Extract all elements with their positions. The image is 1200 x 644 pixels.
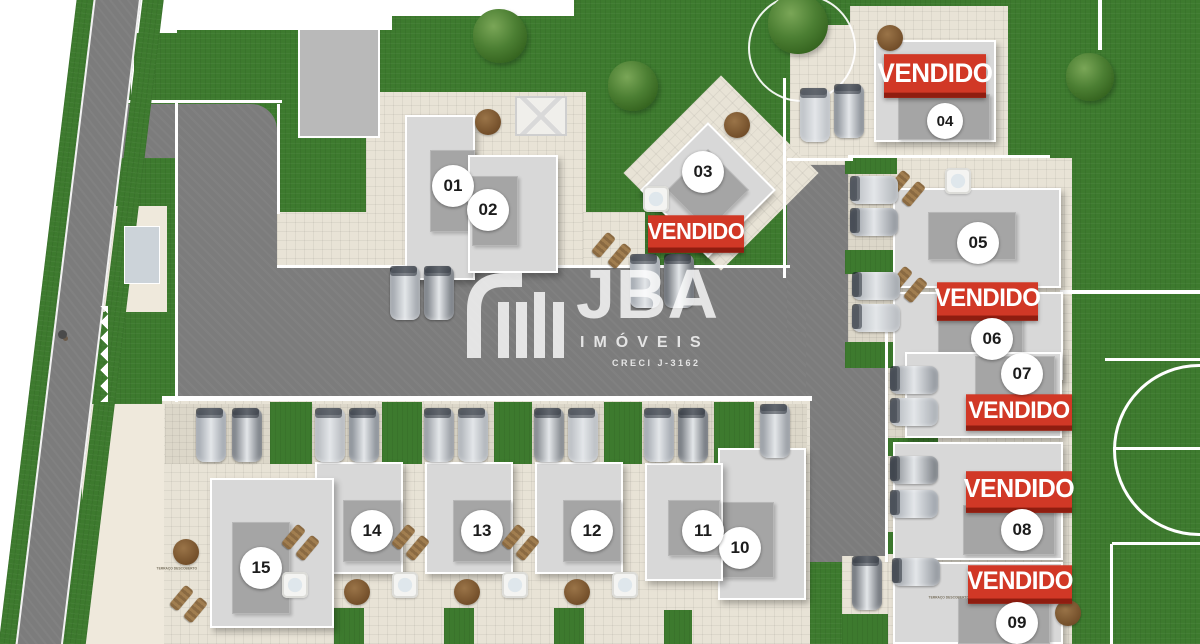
lawn-patch	[845, 250, 897, 274]
spa	[945, 168, 971, 194]
patio-table	[454, 579, 480, 605]
car-rear-window	[850, 176, 857, 201]
unit-badge-12: 12	[571, 510, 613, 552]
patio-table	[877, 25, 903, 51]
lawn-patch	[842, 614, 888, 644]
car-rear-window	[852, 272, 859, 297]
sold-banner-07: VENDIDO	[966, 394, 1072, 430]
car-rear-window	[760, 404, 787, 411]
patio-table	[475, 109, 501, 135]
car-rear-window	[232, 408, 259, 415]
person-icon	[58, 330, 67, 339]
unit-badge-05: 05	[957, 222, 999, 264]
car-rear-window	[834, 84, 861, 91]
sold-banner-09: VENDIDO	[968, 565, 1072, 603]
car-rear-window	[424, 408, 451, 415]
neighbor-building	[298, 14, 380, 138]
tree	[473, 9, 527, 63]
unit-badge-06: 06	[971, 318, 1013, 360]
car	[852, 556, 882, 610]
car-rear-window	[890, 490, 897, 515]
car-rear-window	[390, 266, 417, 273]
unit-badge-08: 08	[1001, 509, 1043, 551]
unit-badge-14: 14	[351, 510, 393, 552]
lawn-patch	[604, 402, 642, 464]
patio-table	[344, 579, 370, 605]
car-rear-window	[678, 408, 705, 415]
car-rear-window	[890, 398, 897, 423]
boundary-line	[175, 102, 178, 402]
car	[800, 88, 830, 142]
terrace-label: TERRAÇO DESCOBERTO	[929, 596, 969, 599]
car-rear-window	[315, 408, 342, 415]
car	[852, 272, 900, 300]
car	[890, 398, 938, 426]
car	[834, 84, 864, 138]
lawn-patch	[554, 608, 584, 644]
watermark: JBA IMÓVEIS CRECI J-3162	[466, 256, 746, 388]
car	[232, 408, 262, 462]
car	[892, 558, 940, 586]
car	[349, 408, 379, 462]
car-rear-window	[800, 88, 827, 95]
lawn-patch	[494, 402, 532, 464]
lawn-patch	[382, 402, 422, 464]
lawn-patch	[664, 610, 692, 644]
unit-badge-02: 02	[467, 189, 509, 231]
boundary-steps	[92, 306, 108, 402]
car	[890, 490, 938, 518]
car	[678, 408, 708, 462]
boundary-line	[162, 396, 812, 401]
car-rear-window	[196, 408, 223, 415]
unit-badge-03: 03	[682, 151, 724, 193]
spa	[502, 572, 528, 598]
lawn-patch	[845, 342, 897, 368]
boundary-line	[885, 332, 888, 562]
boundary-line	[1098, 0, 1102, 50]
car	[534, 408, 564, 462]
unit-badge-11: 11	[682, 510, 724, 552]
car-rear-window	[852, 304, 859, 329]
car	[458, 408, 488, 462]
tree	[608, 61, 658, 111]
car	[390, 266, 420, 320]
car	[850, 208, 898, 236]
spa	[643, 186, 669, 212]
boundary-line	[787, 158, 853, 161]
car	[644, 408, 674, 462]
boundary-line	[1060, 290, 1200, 294]
car	[890, 456, 938, 484]
car	[852, 304, 900, 332]
car-rear-window	[852, 556, 879, 563]
unit-badge-09: 09	[996, 602, 1038, 644]
car-rear-window	[892, 558, 899, 583]
car-rear-window	[644, 408, 671, 415]
watermark-creci: CRECI J-3162	[612, 358, 701, 368]
car-rear-window	[534, 408, 561, 415]
sold-banner-03: VENDIDO	[648, 215, 744, 252]
unit-badge-04: 04	[927, 103, 963, 139]
boundary-line	[277, 104, 280, 214]
car-rear-window	[850, 208, 857, 233]
car	[196, 408, 226, 462]
car	[315, 408, 345, 462]
car	[890, 366, 938, 394]
sold-banner-04: VENDIDO	[884, 54, 986, 98]
boundary-line	[1112, 542, 1200, 545]
paved-patio	[277, 212, 371, 268]
patio-table	[173, 539, 199, 565]
house-roof	[718, 448, 806, 600]
tree	[1066, 53, 1114, 101]
spa	[282, 572, 308, 598]
patio-table	[1055, 600, 1081, 626]
unit-badge-07: 07	[1001, 353, 1043, 395]
patio-table	[564, 579, 590, 605]
jba-building-icon	[466, 270, 572, 358]
patio-table	[724, 112, 750, 138]
unit-badge-13: 13	[461, 510, 503, 552]
car-rear-window	[890, 366, 897, 391]
car-rear-window	[890, 456, 897, 481]
boundary-line	[1110, 544, 1113, 644]
unit-badge-15: 15	[240, 547, 282, 589]
boundary-line	[783, 78, 786, 278]
page-margin	[382, 0, 574, 16]
lawn-patch	[270, 402, 312, 464]
boundary-line	[1105, 358, 1200, 361]
car	[760, 404, 790, 458]
car	[424, 408, 454, 462]
entrance-gatehouse-roof	[124, 226, 160, 284]
unit-badge-10: 10	[719, 527, 761, 569]
spa	[392, 572, 418, 598]
spa	[612, 572, 638, 598]
car-rear-window	[458, 408, 485, 415]
car-rear-window	[568, 408, 595, 415]
watermark-brand: JBA	[576, 262, 719, 326]
sold-banner-06: VENDIDO	[937, 282, 1038, 320]
site-plan: TERRAÇO DESCOBERTO TERRAÇO DESCOBERTO VE…	[0, 0, 1200, 644]
lawn-patch	[334, 608, 364, 644]
car	[850, 176, 898, 204]
sold-banner-08: VENDIDO	[966, 471, 1072, 513]
car	[424, 266, 454, 320]
unit-badge-01: 01	[432, 165, 474, 207]
boundary-line	[848, 155, 1050, 158]
car	[568, 408, 598, 462]
lawn-patch	[444, 608, 474, 644]
car-rear-window	[424, 266, 451, 273]
gazebo	[515, 96, 567, 136]
watermark-subtitle: IMÓVEIS	[580, 334, 710, 352]
car-rear-window	[349, 408, 376, 415]
terrace-label: TERRAÇO DESCOBERTO	[157, 567, 197, 570]
